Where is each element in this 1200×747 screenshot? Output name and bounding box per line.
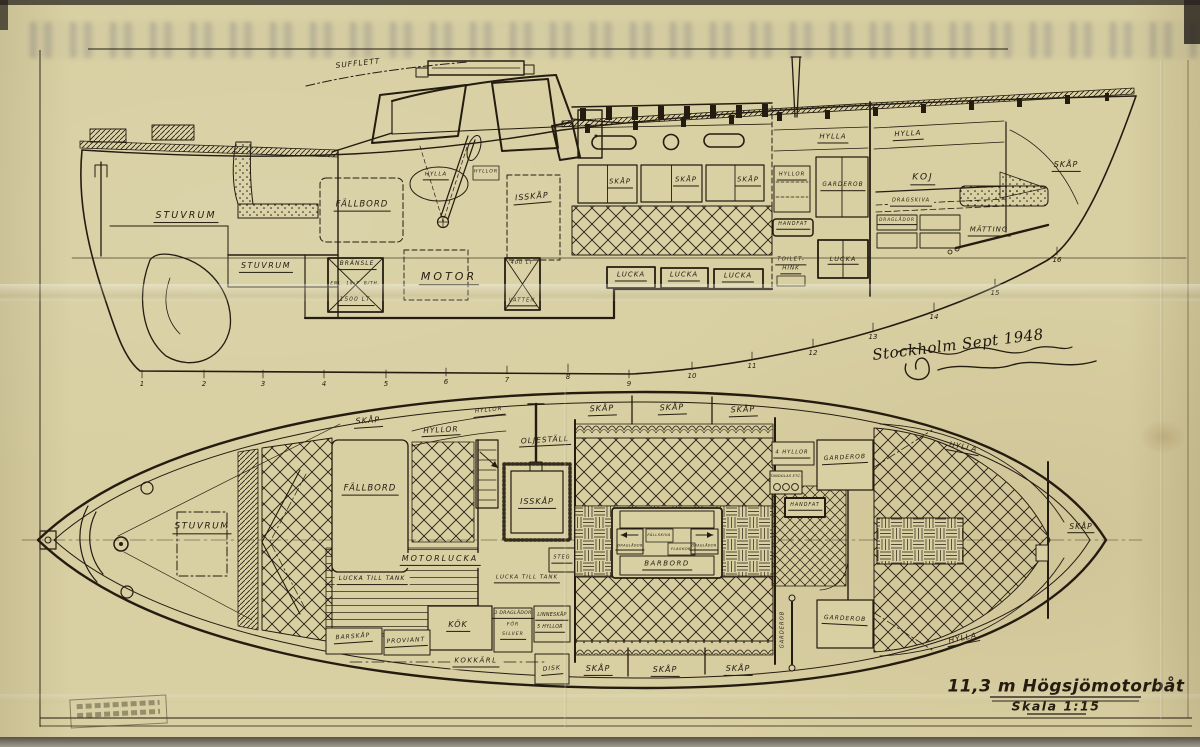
label-barbord: BARBORD [642, 560, 692, 570]
station-number: 12 [809, 349, 818, 357]
paper-fold [0, 284, 1200, 301]
label-silver-3: SILVER [500, 633, 526, 640]
station-number: 8 [566, 373, 570, 381]
label-skap-bow-profile: SKÅP [1052, 161, 1081, 172]
station-number: 13 [869, 333, 878, 341]
label-hyllor-a: HYLLOR [421, 425, 461, 437]
label-flaskor: FLASKOR [671, 547, 691, 551]
label-isskap-plan: ISSKÅP [518, 498, 556, 509]
label-garderob-top: GARDEROB [822, 454, 869, 465]
paper-edge-bottom [0, 737, 1200, 747]
station-number: 2 [202, 380, 206, 388]
label-lucka-tank-1: LUCKA TILL TANK [337, 576, 408, 585]
label-koj: KOJ [910, 173, 935, 185]
label-barskap: BARSKÅP [333, 633, 372, 644]
station-number: 10 [688, 372, 697, 380]
label-hylla-fore: HYLLA [892, 130, 924, 141]
station-number: 6 [444, 378, 448, 386]
label-lucka-2: LUCKA [668, 271, 700, 281]
station-number: 11 [748, 362, 757, 370]
label-steg: STEG [551, 556, 572, 564]
label-skap-1: SKÅP [607, 178, 633, 188]
label-draglador-r: DRAGLÅDOR [689, 545, 718, 551]
label-silver-2: FÖR [507, 623, 519, 628]
paper-crease-2 [1160, 60, 1163, 720]
label-garderob-bottom: GARDEROB [822, 615, 869, 626]
label-sufflett: SUFFLETT [335, 57, 381, 69]
label-toilet-line2: HINK [780, 266, 801, 274]
paper-edge-top [0, 0, 1200, 5]
label-hylla-plan-bottom: HYLLA [946, 631, 980, 647]
label-fallskiva: FÄLLSKIVA [647, 533, 670, 537]
label-stuvrum-cockpit: STUVRUM [239, 262, 293, 273]
label-isskap-profile: ISSKÅP [513, 191, 552, 205]
station-number: 1 [140, 380, 144, 388]
paper-crease-1 [564, 388, 567, 728]
archive-stamp [69, 694, 167, 728]
station-number: 5 [384, 380, 388, 388]
label-handfat-profile: HANDFAT [776, 223, 810, 230]
label-layer: SUFFLETT STUVRUM STUVRUM FÄLLBORD HYLLA … [0, 0, 1200, 747]
label-draglador-profile: DRAGLÅDOR [877, 218, 917, 225]
label-stuvrum-aft: STUVRUM [153, 211, 218, 223]
label-hylla-wc: HYLLA [817, 133, 848, 143]
label-tandglas: TANDGLAS ETC. [770, 475, 801, 479]
label-hyllor-4: 4 HYLLOR [773, 451, 810, 459]
station-number: 9 [627, 380, 631, 388]
label-silver-1: 3 DRAGLÅDOR [492, 612, 533, 619]
label-garderob-vertical: GARDEROB [780, 611, 785, 649]
label-dragskiva: DRAGSKIVA [890, 199, 932, 207]
label-linneskap-2: 5 HYLLOR [535, 626, 565, 633]
label-skap-3: SKÅP [735, 176, 761, 186]
label-proviant: PROVIANT [384, 637, 427, 648]
label-hylla-plan-top: HYLLA [946, 440, 980, 456]
paper-corner-left [0, 0, 8, 30]
label-skap-2: SKÅP [673, 176, 699, 186]
label-skap-top-1: SKÅP [588, 404, 617, 415]
label-fallbord-profile: FÄLLBORD [334, 201, 391, 212]
label-hyllor-wheelhouse: HYLLOR [474, 170, 498, 175]
label-skap-bow-plan: SKÅP [1067, 523, 1094, 533]
label-kok: KÖK [446, 621, 470, 632]
label-draglador-l: DRAGLÅDOR [615, 545, 644, 551]
label-fallbord-plan: FÄLLBORD [342, 485, 399, 496]
label-handfat-plan: HANDFAT [788, 504, 822, 511]
label-bransle: BRÄNSLE [338, 261, 377, 270]
label-matting: MÄTTING [968, 226, 1011, 236]
label-motorlucka: MOTORLUCKA [400, 555, 481, 566]
label-lucka-3: LUCKA [722, 272, 754, 282]
label-lucka-wc: LUCKA [828, 256, 859, 265]
station-number: 14 [930, 313, 939, 321]
label-hyllor-wc: HYLLOR [777, 173, 807, 181]
station-number: 7 [505, 376, 509, 384]
label-lucka-tank-2: LUCKA TILL TANK [494, 575, 560, 583]
label-lucka-1: LUCKA [615, 271, 647, 281]
label-hyllor-b: HYLLOR [473, 407, 505, 418]
signature-text: Stockholm Sept 1948 [871, 325, 1044, 364]
paper-fold-2 [0, 694, 1200, 703]
label-skap-aft-plan: SKÅP [353, 416, 382, 428]
label-skap-top-2: SKÅP [658, 403, 687, 414]
station-number: 4 [322, 380, 326, 388]
station-number: 3 [261, 380, 265, 388]
label-vatten-vol: 400 LT [511, 261, 534, 266]
blueprint-page: SUFFLETT STUVRUM STUVRUM FÄLLBORD HYLLA … [0, 0, 1200, 747]
label-skap-bot-1: SKÅP [584, 665, 613, 676]
label-motor: MOTOR [419, 271, 479, 285]
paper-stain [1140, 420, 1186, 454]
label-skap-bot-3: SKÅP [724, 665, 753, 676]
paper-corner-right [1184, 0, 1200, 44]
label-kokkarl: KOKKÄRL [452, 657, 499, 667]
label-skap-bot-2: SKÅP [651, 666, 680, 677]
label-disk: DISK [541, 665, 564, 675]
label-garderob-profile: GARDEROB [820, 183, 865, 191]
label-toilet-line1: TOILET- [775, 257, 806, 265]
label-hylla-wheelhouse: HYLLA [423, 172, 449, 180]
label-skap-top-3: SKÅP [729, 405, 758, 416]
station-number: 16 [1053, 256, 1062, 264]
label-stuvrum-plan: STUVRUM [172, 522, 231, 534]
